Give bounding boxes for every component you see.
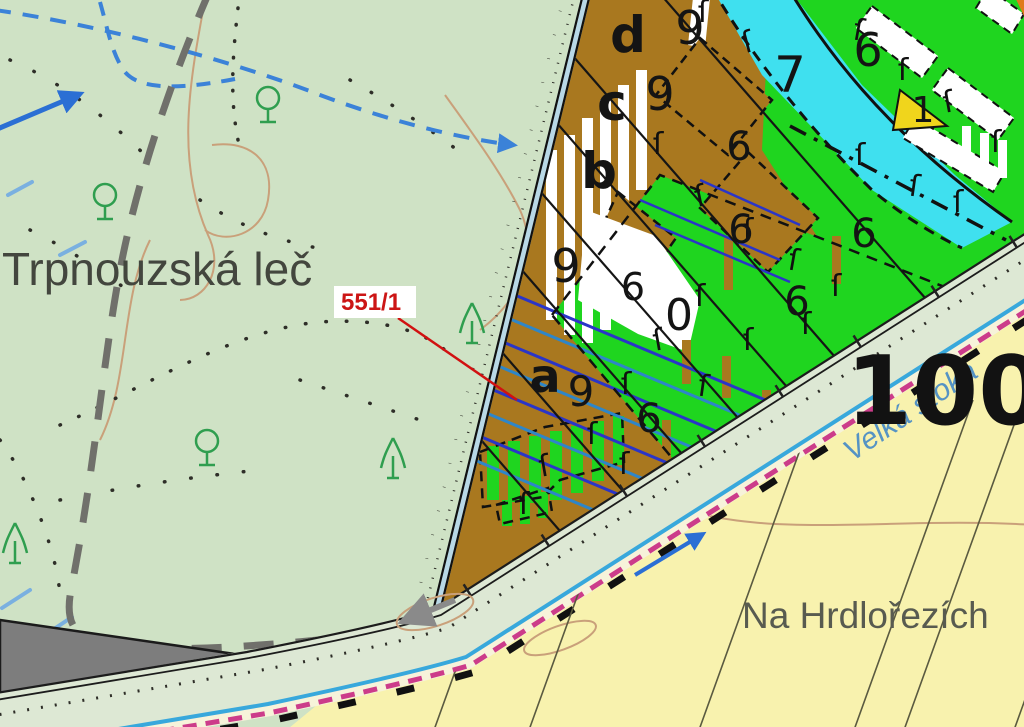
regeneration-mark-icon: ſ	[619, 447, 631, 482]
regeneration-mark-icon: ſ	[587, 417, 599, 452]
stand-label-a: a	[529, 349, 560, 403]
regeneration-mark-icon: ſ	[653, 127, 665, 162]
stand-label-6: 6	[784, 279, 809, 325]
regeneration-mark-icon: ſ	[991, 125, 1003, 160]
parcel-number-label: 551/1	[341, 289, 401, 316]
stand-label-9: 9	[645, 67, 674, 121]
regeneration-mark-icon: ſ	[695, 279, 707, 314]
map-canvas[interactable]: ſſſſſſſſſſſſſſſſſſſſſſſſ d9c9b9a97166666…	[0, 0, 1024, 727]
stand-label-6: 6	[853, 23, 882, 77]
regeneration-mark-icon: ſ	[898, 53, 910, 88]
stand-label-7: 7	[774, 46, 806, 104]
regeneration-mark-icon: ſ	[743, 323, 755, 358]
regeneration-mark-icon: ſ	[855, 138, 867, 173]
stand-label-d: d	[610, 6, 646, 64]
stand-label-9: 9	[568, 367, 595, 416]
stand-label-6: 6	[621, 265, 645, 309]
stand-label-b: b	[581, 142, 617, 200]
forestry-map[interactable]: ſſſſſſſſſſſſſſſſſſſſſſſſ d9c9b9a97166666…	[0, 0, 1024, 727]
stand-label-6: 6	[851, 211, 876, 257]
stand-label-c: c	[597, 74, 627, 132]
stand-label-6: 6	[728, 207, 753, 253]
stand-label-9: 9	[551, 239, 580, 293]
stand-label-6: 6	[726, 124, 751, 170]
stand-label-1: 1	[912, 90, 935, 131]
regeneration-mark-icon: ſ	[953, 185, 965, 220]
forest-name-label: Trpnouzská leč	[2, 243, 312, 295]
stand-label-9: 9	[675, 1, 704, 55]
field-name-label: Na Hrdlořezích	[742, 595, 989, 636]
regeneration-mark-icon: ſ	[621, 367, 633, 402]
map-sheet-number: 100	[846, 337, 1024, 447]
stand-label-6: 6	[636, 396, 661, 442]
regeneration-mark-icon: ſ	[831, 269, 843, 304]
regeneration-mark-icon: ſ	[519, 487, 531, 522]
stand-label-0: 0	[665, 290, 693, 341]
